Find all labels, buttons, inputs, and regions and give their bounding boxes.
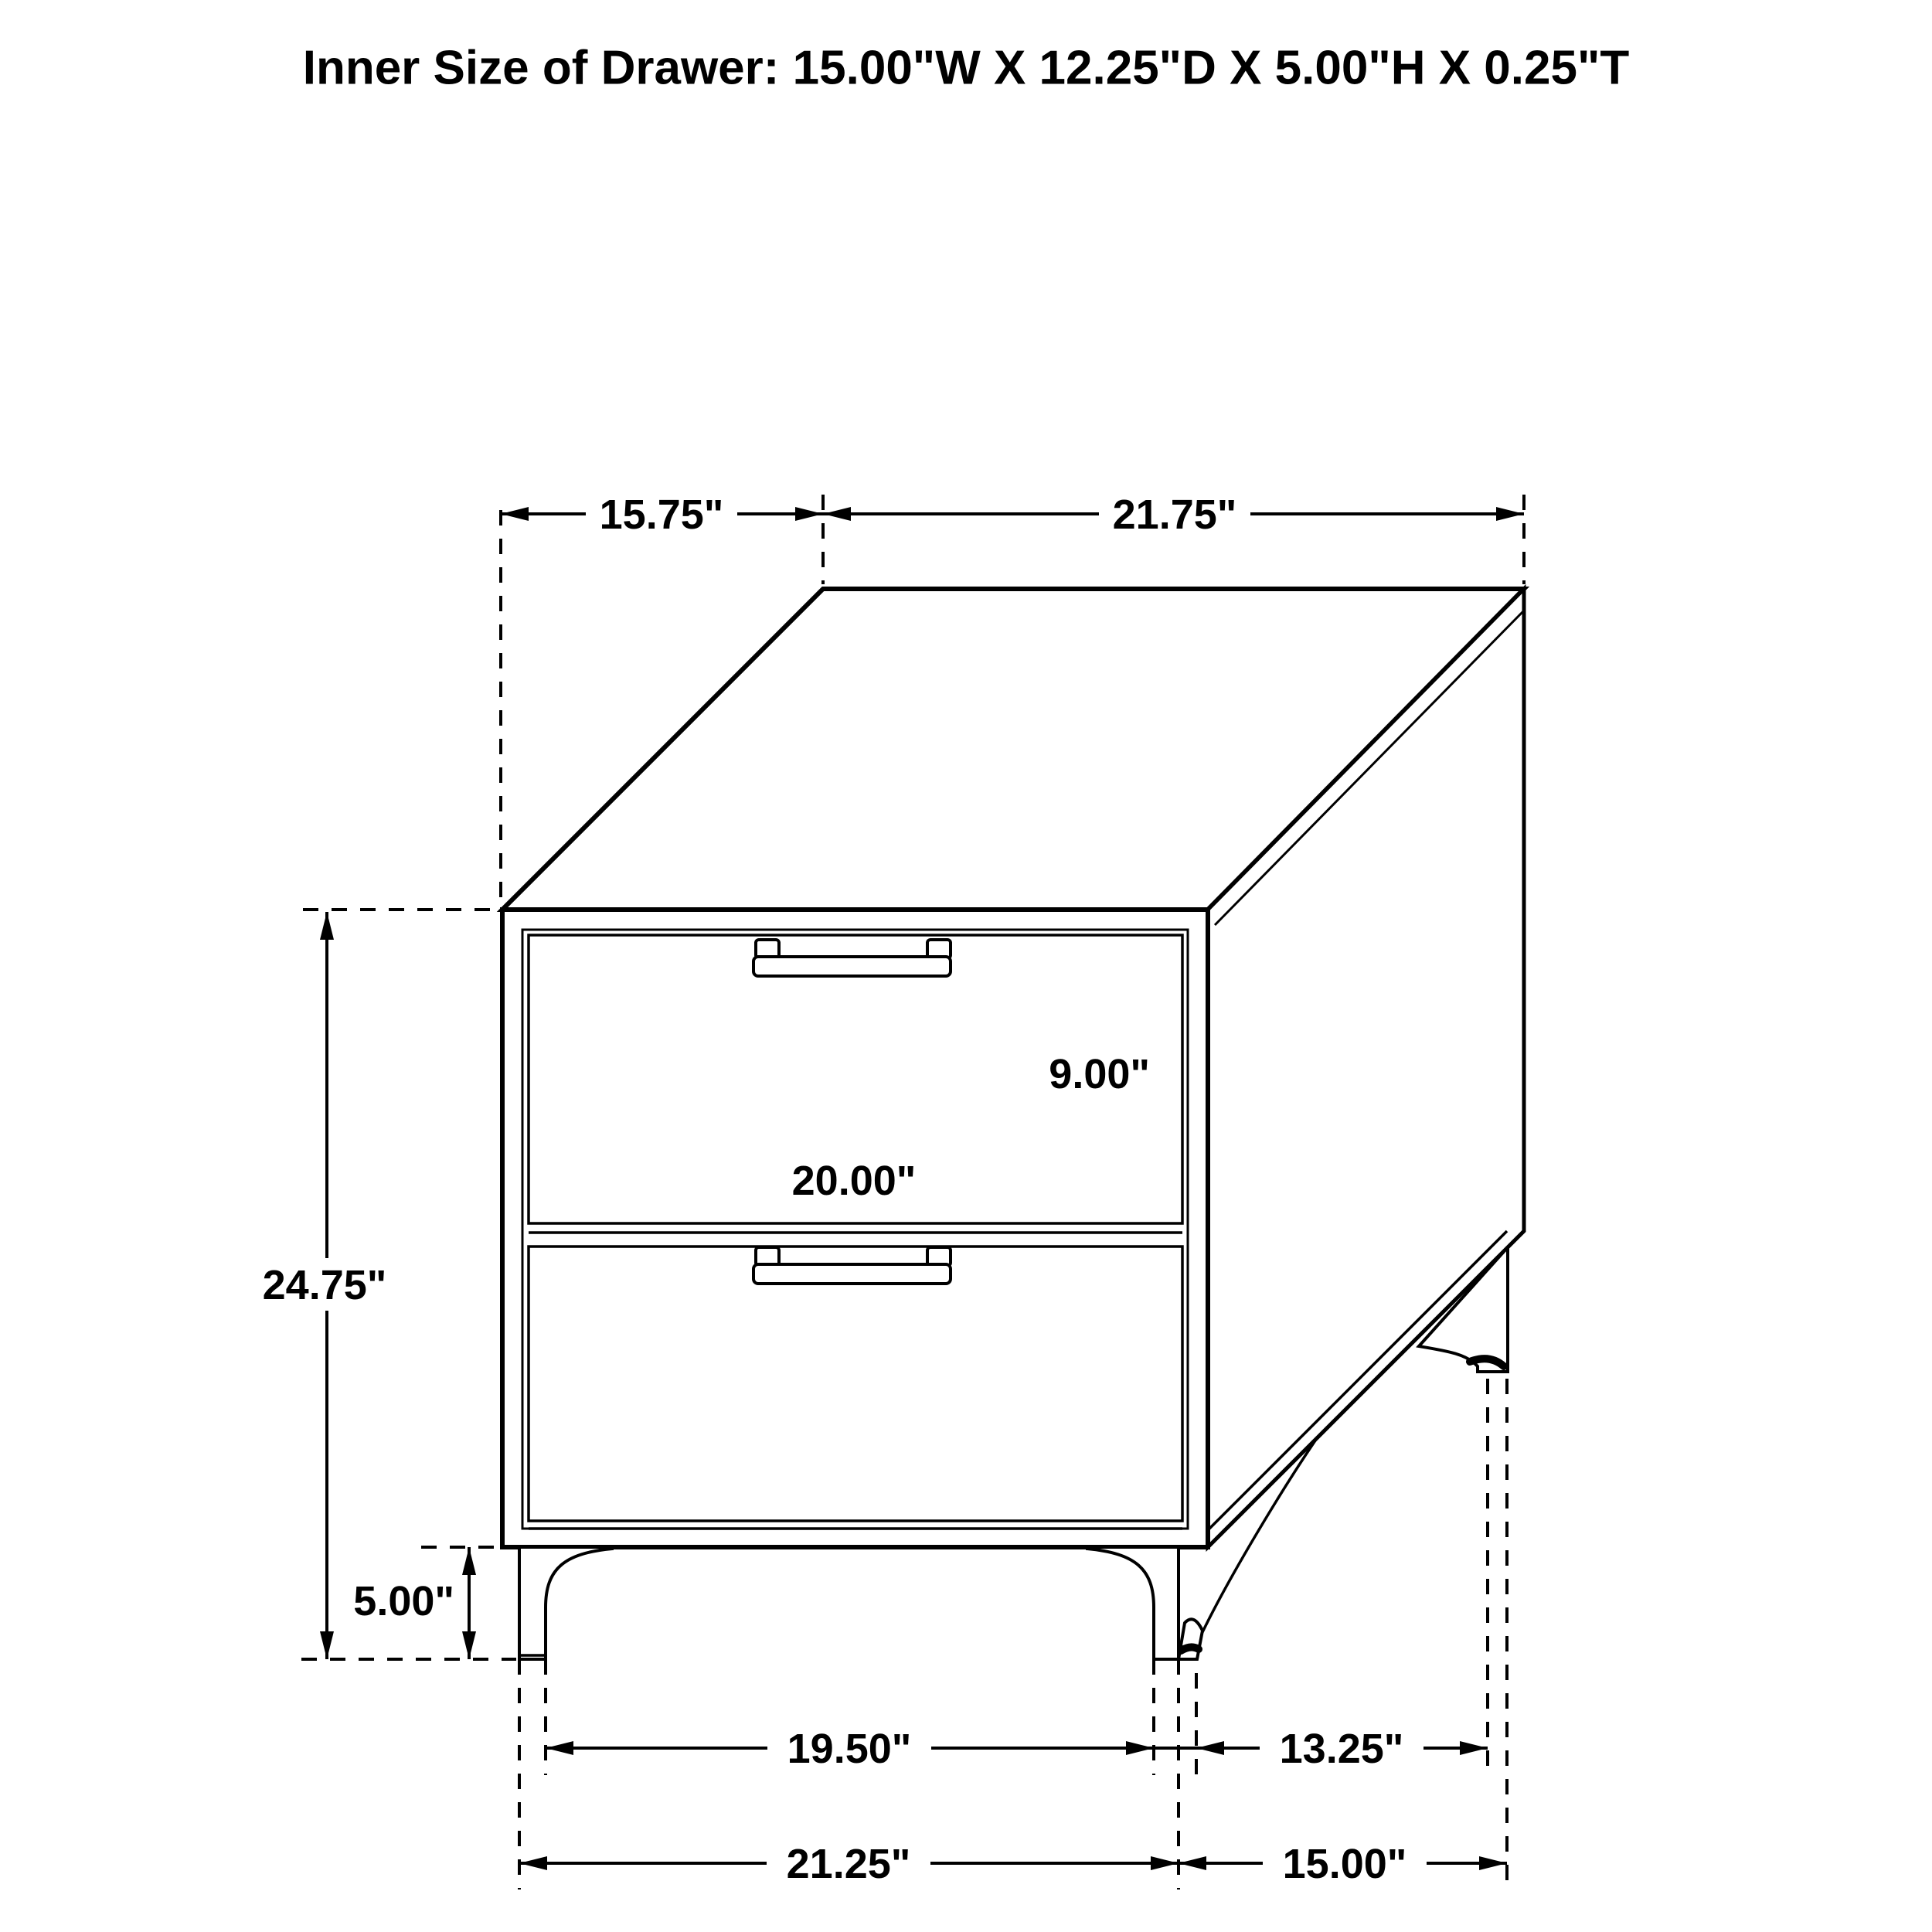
furniture-dimension-drawing: Inner Size of Drawer: 15.00"W X 12.25"D … bbox=[0, 0, 1932, 1932]
dim-label-drawer-width: 20.00" bbox=[792, 1158, 917, 1204]
dim-label-feet-outer-span: 21.25" bbox=[787, 1841, 911, 1887]
dim-label-top-depth: 15.75" bbox=[600, 492, 724, 538]
drawer-1-handle-bar bbox=[753, 957, 951, 976]
dim-label-overall-height: 24.75" bbox=[263, 1262, 387, 1308]
dim-label-feet-inner-span: 19.50" bbox=[787, 1726, 912, 1772]
dim-label-top-width: 21.75" bbox=[1113, 492, 1237, 538]
front-right-foot-shadow bbox=[1181, 1647, 1199, 1651]
dim-label-leg-height: 5.00" bbox=[353, 1578, 454, 1624]
dim-label-side-depth-span: 15.00" bbox=[1283, 1841, 1407, 1887]
dimension-diagram-page: Inner Size of Drawer: 15.00"W X 12.25"D … bbox=[0, 0, 1932, 1932]
dim-label-side-feet-span: 13.25" bbox=[1280, 1726, 1404, 1772]
dim-label-drawer-height: 9.00" bbox=[1049, 1051, 1150, 1097]
page-title: Inner Size of Drawer: 15.00"W X 12.25"D … bbox=[303, 42, 1630, 95]
drawer-2-front bbox=[529, 1247, 1182, 1521]
drawer-2-handle-bar bbox=[753, 1264, 951, 1284]
